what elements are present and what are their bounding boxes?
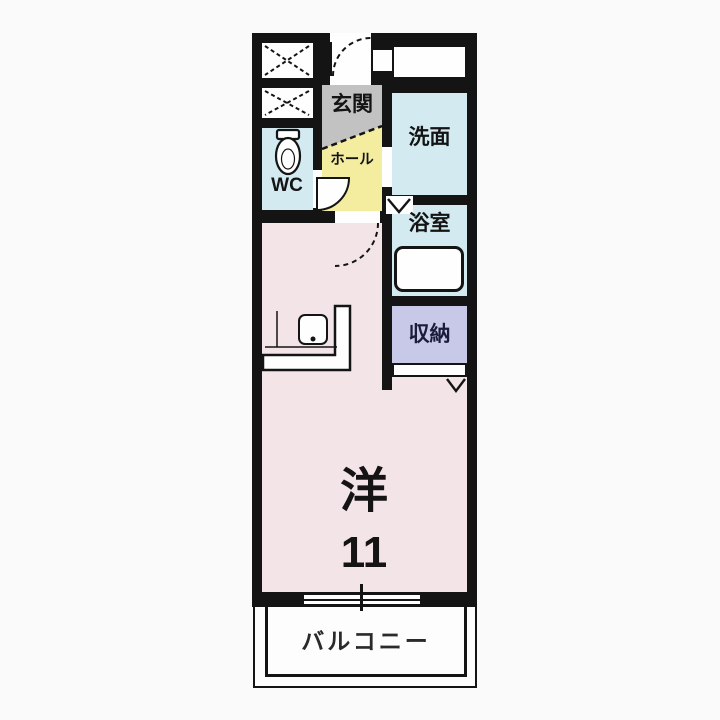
hall-door-opening [335, 211, 380, 223]
main-room-label: 洋 [322, 459, 406, 513]
washroom-door-opening [382, 147, 392, 187]
washroom-label: 洗面 [392, 123, 467, 149]
bathtub-icon [394, 246, 464, 292]
toilet-label: WC [262, 174, 312, 198]
storage-door [392, 363, 467, 377]
main-room-size-label: 11 [322, 528, 406, 578]
floor-plan: 玄関 ホール WC 洗面 浴室 収納 洋 11 バルコニー [0, 0, 720, 720]
balcony-inner-line-bottom [265, 674, 467, 677]
wall-outer-right [467, 33, 477, 607]
entrance-label: 玄関 [322, 90, 382, 116]
balcony-label: バルコニー [265, 624, 467, 654]
wall-outer-left [252, 33, 262, 607]
entrance-door-leaf [371, 48, 394, 73]
entrance-niche [394, 47, 465, 77]
duct-box-2 [262, 88, 313, 118]
wc-door-opening [313, 170, 322, 208]
bathroom-label: 浴室 [392, 209, 467, 235]
duct-box-1 [262, 43, 313, 78]
storage-label: 収納 [392, 320, 467, 346]
entrance-approach [330, 33, 371, 85]
sliding-window-center-tick [360, 584, 363, 611]
hall-label: ホール [322, 150, 382, 167]
